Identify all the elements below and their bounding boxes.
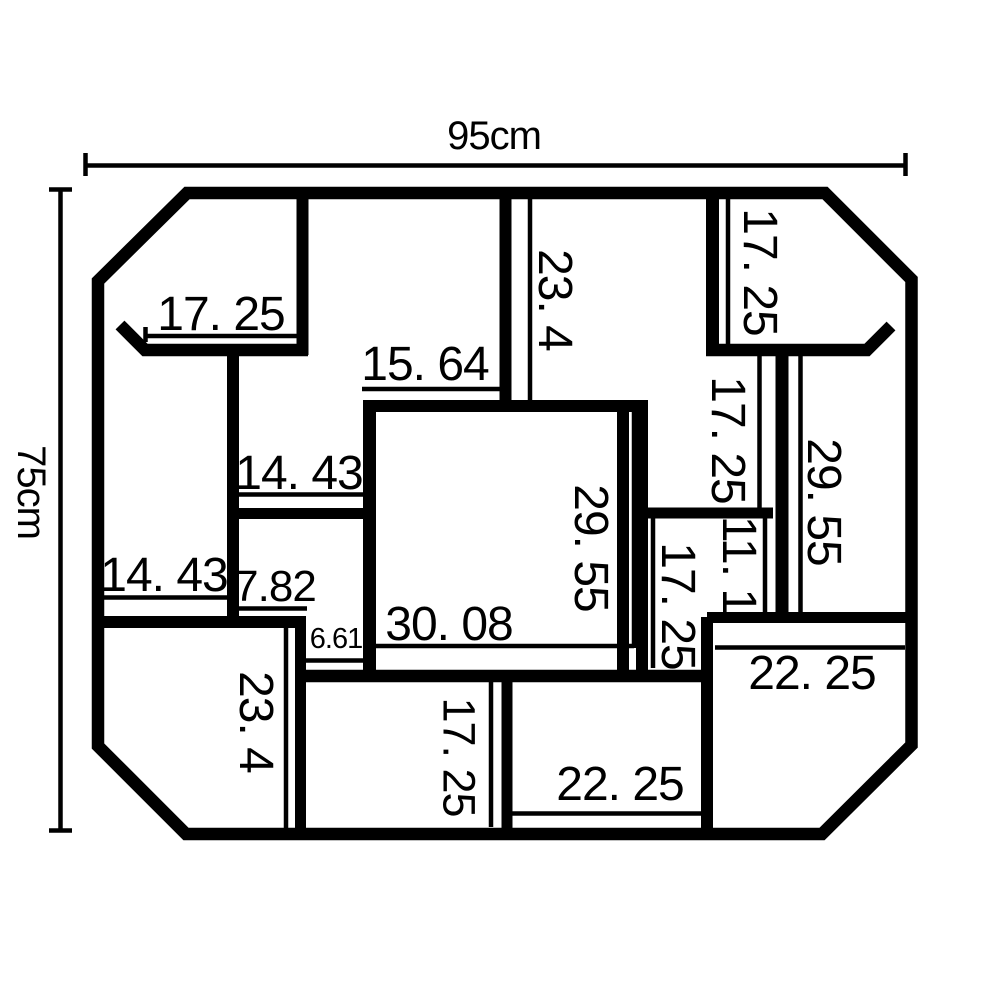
svg-text:17. 25: 17. 25 bbox=[433, 697, 484, 816]
svg-text:75cm: 75cm bbox=[9, 445, 53, 539]
svg-text:29. 55: 29. 55 bbox=[564, 484, 617, 611]
svg-text:22. 25: 22. 25 bbox=[556, 758, 683, 811]
svg-text:17. 25: 17. 25 bbox=[733, 208, 786, 335]
svg-text:17. 25: 17. 25 bbox=[701, 376, 754, 503]
svg-text:15. 64: 15. 64 bbox=[361, 338, 489, 391]
svg-text:23. 4: 23. 4 bbox=[528, 249, 581, 351]
svg-text:30. 08: 30. 08 bbox=[385, 598, 512, 651]
svg-text:29. 55: 29. 55 bbox=[797, 438, 850, 565]
svg-text:17. 25: 17. 25 bbox=[157, 288, 284, 341]
svg-text:22. 25: 22. 25 bbox=[748, 647, 875, 700]
svg-text:23. 4: 23. 4 bbox=[229, 671, 282, 773]
svg-text:14. 43: 14. 43 bbox=[100, 549, 227, 602]
svg-text:95cm: 95cm bbox=[447, 114, 541, 158]
svg-text:14. 43: 14. 43 bbox=[235, 447, 362, 500]
svg-text:7.82: 7.82 bbox=[234, 562, 316, 611]
svg-text:6.61: 6.61 bbox=[310, 623, 362, 655]
svg-text:17. 25: 17. 25 bbox=[651, 542, 704, 669]
svg-text:11. 1: 11. 1 bbox=[712, 516, 765, 614]
